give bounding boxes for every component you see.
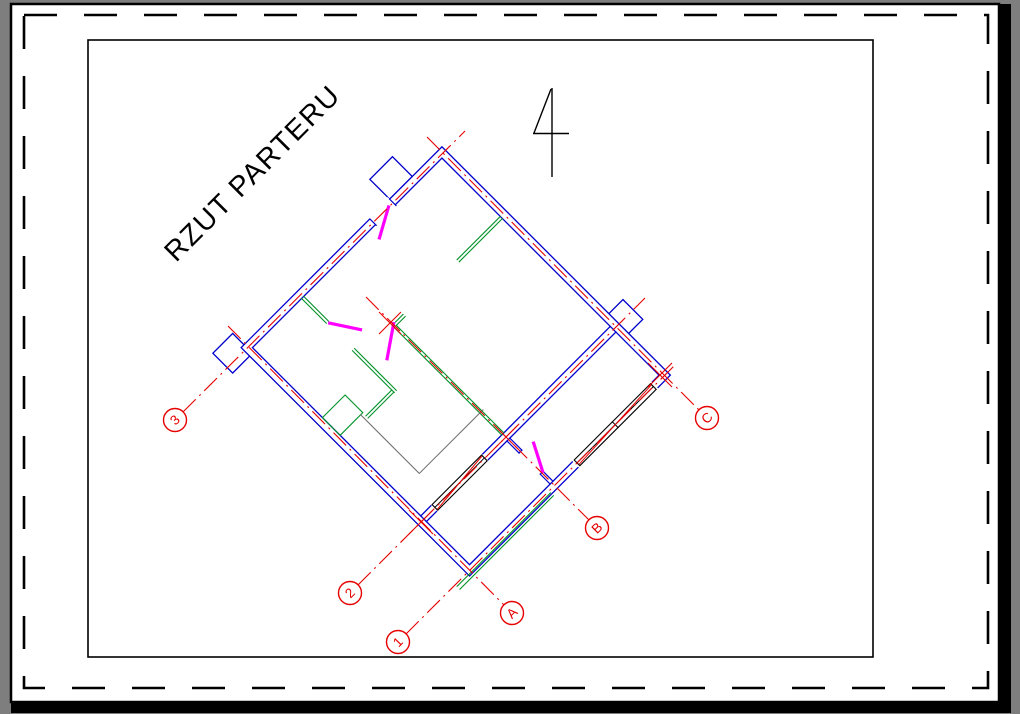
- cad-layout-view: 3 2 1 A B C RZUT PARTERU: [0, 0, 1020, 714]
- axis-bubble-A: A: [501, 602, 524, 625]
- axis-bubble-1: 1: [387, 631, 410, 654]
- paper-shadow-right: [999, 4, 1011, 713]
- axis-bubble-B: B: [586, 517, 609, 540]
- axis-bubble-3: 3: [164, 409, 187, 432]
- axis-bubble-2: 2: [339, 582, 362, 605]
- axis-bubble-C: C: [696, 407, 719, 430]
